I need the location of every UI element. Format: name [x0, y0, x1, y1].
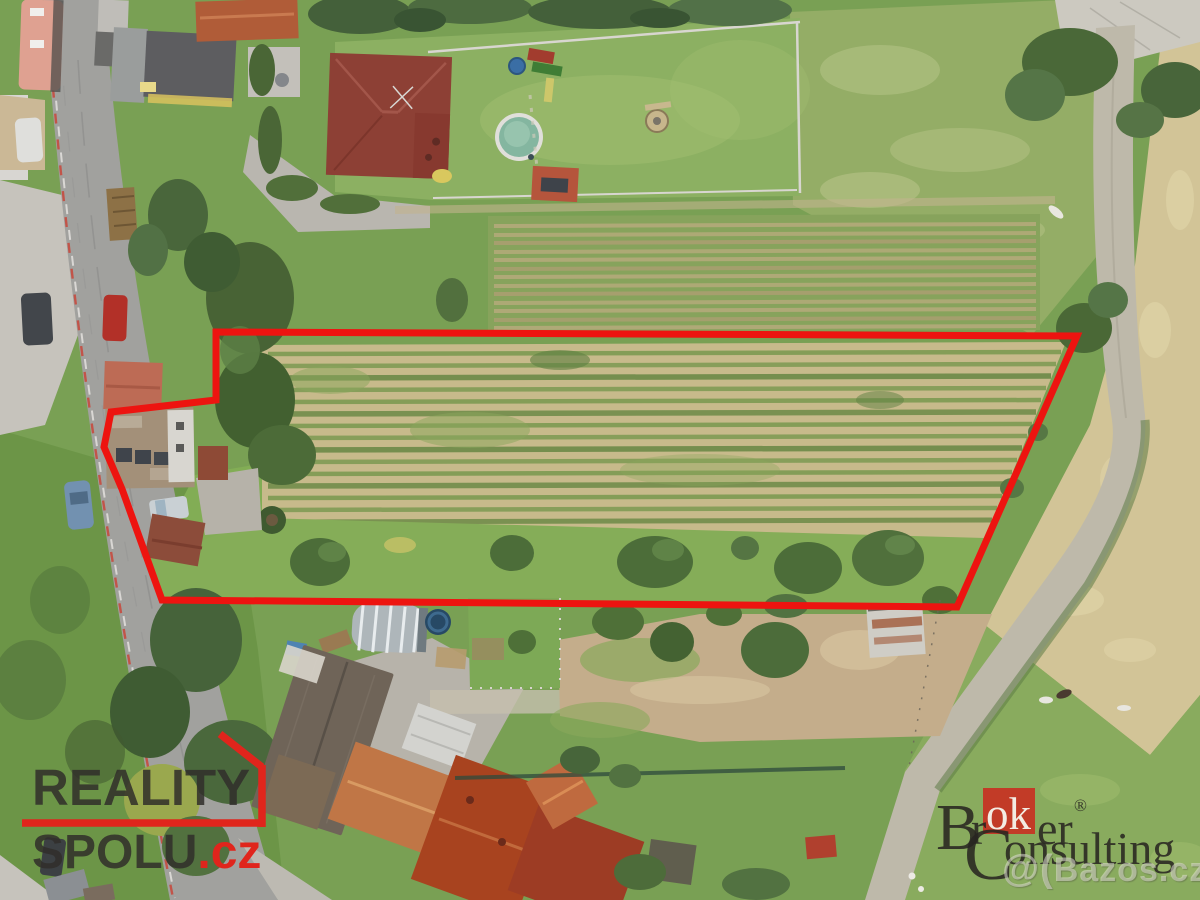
reality-spolu-word: SPOLU	[32, 826, 197, 879]
reality-spolu-cz-suffix: .cz	[197, 826, 261, 879]
broker-registered-mark: ®	[1074, 797, 1087, 814]
aerial-photo-listing: REALITY SPOLU.cz B r ok er ® C onsulting…	[0, 0, 1200, 900]
reality-spolu-watermark: REALITY SPOLU.cz	[21, 730, 281, 880]
bazos-site-name: Bazos.cz	[1054, 851, 1200, 889]
upper-crop-field	[395, 200, 1055, 332]
reality-spolu-line1: REALITY	[32, 762, 250, 813]
bazos-watermark: @(Bazos.cz	[1002, 848, 1200, 891]
bazos-at-symbol: @(	[1002, 848, 1054, 890]
reality-spolu-line2: SPOLU.cz	[32, 829, 261, 877]
